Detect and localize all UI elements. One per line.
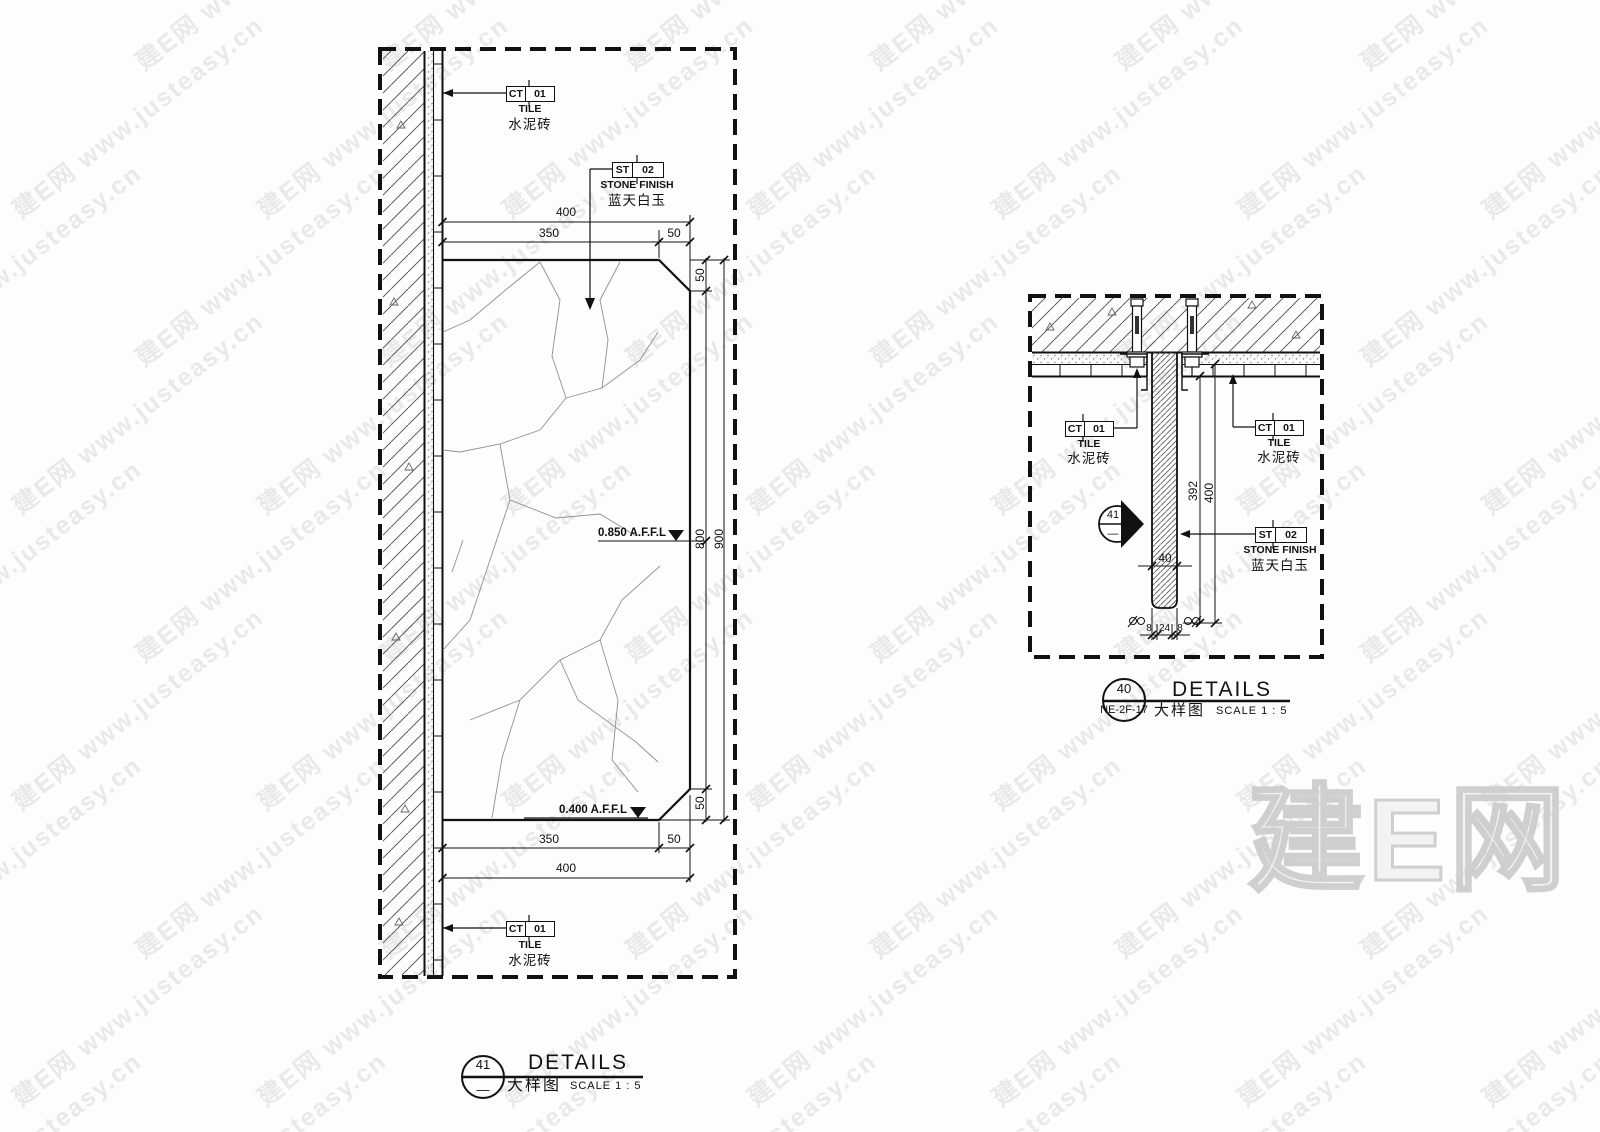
detail-40-ref: NE-2F-17 — [1094, 705, 1154, 716]
detail-40-title: DETAILS — [1172, 679, 1272, 700]
detail-41-scale: SCALE 1 : 5 — [570, 1081, 642, 1092]
detail-41-title: DETAILS — [528, 1052, 628, 1073]
tag-material-en: TILE — [1254, 438, 1304, 449]
dim-400: 400 — [1203, 473, 1215, 513]
tag-number: 01 — [526, 87, 554, 101]
left-detail-dimensions — [439, 215, 731, 882]
tag-code: CT — [1256, 421, 1275, 435]
detail-40-number: 40 — [1108, 682, 1140, 695]
dim-8-right: 8 — [1174, 624, 1186, 634]
tag-material-en: TILE — [505, 104, 555, 115]
tag-number: 01 — [526, 922, 554, 936]
tag-material-cn: 蓝天白玉 — [601, 194, 673, 208]
tag-material-cn: 水泥砖 — [503, 954, 557, 968]
section-marker-41-ref: — — [1098, 529, 1128, 540]
dim-bottom-50: 50 — [658, 833, 690, 845]
left-detail-wall-section — [383, 51, 443, 976]
tag-material-en: STONE FINISH — [597, 180, 677, 191]
tag-number: 02 — [633, 163, 663, 177]
dim-8-left: 8 — [1143, 624, 1155, 634]
dim-24: 24 — [1156, 624, 1173, 634]
dim-v50-bottom: 50 — [694, 783, 706, 823]
tag-code: CT — [507, 87, 526, 101]
level-arrow-upper — [668, 530, 684, 541]
level-upper: 0.850 A.F.F.L — [566, 528, 666, 540]
detail-41-number: 41 — [467, 1058, 499, 1071]
finish-tag-ct01-right-detail-right: CT 01 — [1255, 420, 1304, 436]
section-marker-41-number: 41 — [1098, 510, 1128, 521]
tag-number: 01 — [1085, 422, 1113, 436]
detail-41-title-cn: 大样图 — [507, 1078, 561, 1094]
tag-material-en: TILE — [505, 940, 555, 951]
left-detail-stone-panel — [443, 260, 691, 820]
level-lower: 0.400 A.F.F.L — [527, 805, 627, 817]
detail-41-ref: — — [467, 1083, 499, 1096]
tag-material-cn: 蓝天白玉 — [1244, 559, 1316, 573]
tag-material-cn: 水泥砖 — [1062, 452, 1116, 466]
finish-tag-ct01-right-detail-left: CT 01 — [1065, 421, 1114, 437]
finish-tag-st02-left: ST 02 — [612, 162, 664, 178]
tag-material-en: TILE — [1064, 439, 1114, 450]
detail-40-title-cn: 大样图 — [1154, 703, 1205, 718]
drawing-linework — [0, 0, 1600, 1132]
dim-v50-top: 50 — [694, 255, 706, 295]
dim-top-350: 350 — [523, 227, 575, 239]
dim-392: 392 — [1187, 471, 1199, 511]
tag-material-cn: 水泥砖 — [503, 118, 557, 132]
dim-40: 40 — [1150, 552, 1180, 564]
dim-top-400: 400 — [540, 206, 592, 218]
dim-bottom-350: 350 — [523, 833, 575, 845]
finish-tag-st02-right-detail: ST 02 — [1255, 527, 1307, 543]
tag-number: 01 — [1275, 421, 1303, 435]
level-arrow-lower — [630, 807, 646, 818]
finish-tag-ct01-bottom: CT 01 — [506, 921, 555, 937]
tag-code: CT — [1066, 422, 1085, 436]
marble-veins — [443, 262, 660, 818]
tag-material-en: STONE FINISH — [1240, 545, 1320, 556]
dim-v900: 900 — [713, 519, 725, 559]
tag-code: ST — [1256, 528, 1276, 542]
cad-sheet: 建E网 建E网 www.justeasy.cn建E网 www.justeasy.… — [0, 0, 1600, 1132]
dim-top-50: 50 — [658, 227, 690, 239]
finish-tag-ct01-top: CT 01 — [506, 86, 555, 102]
right-detail-section-marker — [1099, 500, 1144, 548]
tag-number: 02 — [1276, 528, 1306, 542]
tag-code: ST — [613, 163, 633, 177]
section-arrow-icon — [1121, 500, 1144, 548]
dim-bottom-400: 400 — [540, 862, 592, 874]
tag-material-cn: 水泥砖 — [1252, 451, 1306, 465]
dim-v800: 800 — [694, 519, 706, 559]
detail-40-scale: SCALE 1 : 5 — [1216, 706, 1288, 717]
tag-code: CT — [507, 922, 526, 936]
